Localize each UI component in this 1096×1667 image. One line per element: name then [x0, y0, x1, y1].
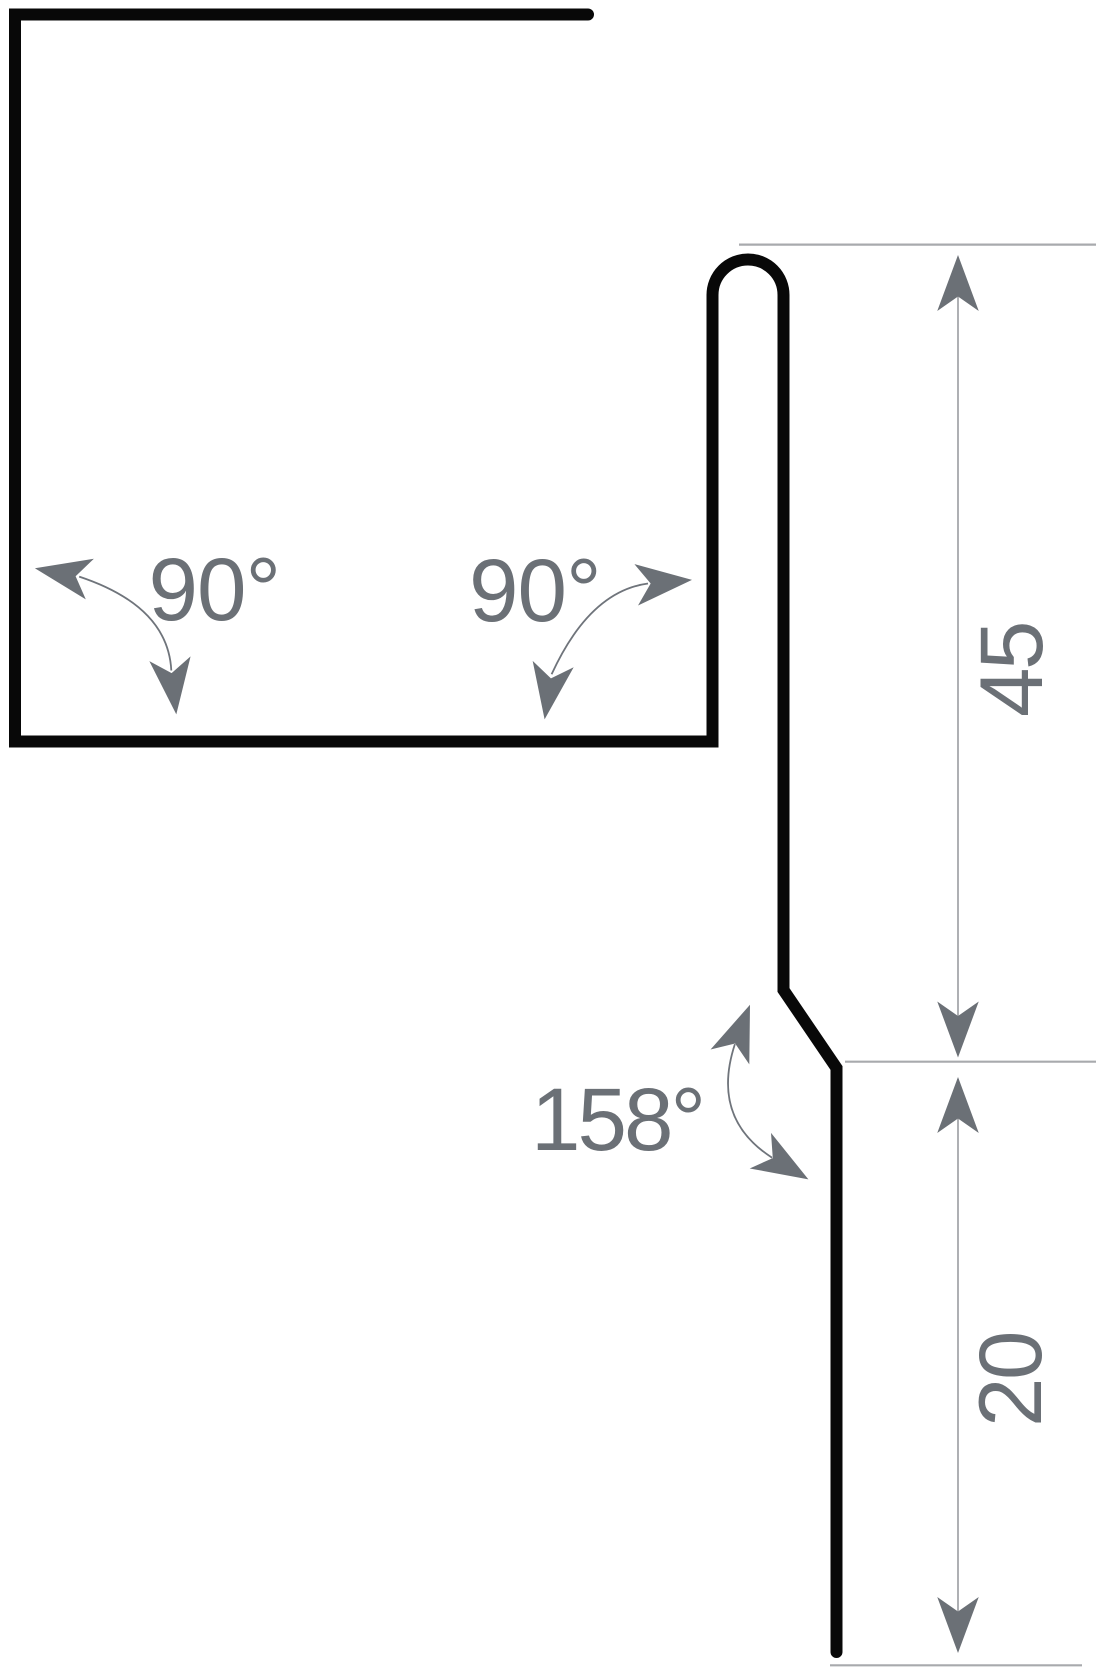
svg-text:90°: 90° — [149, 539, 281, 639]
svg-text:20: 20 — [960, 1333, 1060, 1427]
svg-text:158°: 158° — [531, 1069, 703, 1169]
svg-text:90°: 90° — [469, 540, 601, 640]
svg-text:45: 45 — [961, 623, 1061, 717]
